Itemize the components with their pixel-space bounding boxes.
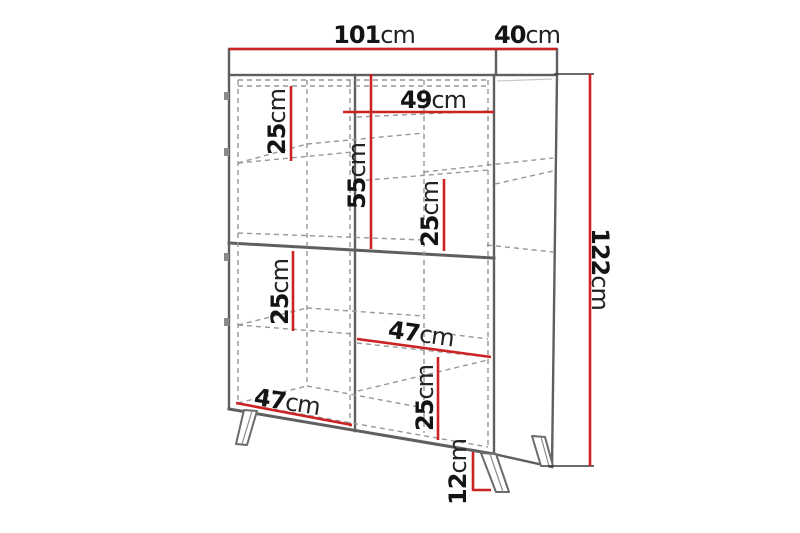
side-panel-inner-line [497, 79, 552, 81]
hinge-mark [224, 253, 229, 261]
dim-label-upper-right-shelf: 25cm [416, 181, 444, 247]
cabinet-legs [236, 410, 553, 492]
dim-label-upper-section-height: 55cm [343, 143, 371, 209]
dim-label-lower-right-shelf: 25cm [411, 365, 439, 431]
cabinet-top-panel [229, 49, 557, 75]
hinge-mark [224, 148, 229, 156]
dim-label-upper-right-width: 49cm [400, 86, 466, 114]
dim-label-lower-left-shelf: 25cm [266, 259, 294, 325]
furniture-dimension-diagram: 101cm 40cm 122cm 25cm 49cm 55cm 25cm 25c… [0, 0, 800, 533]
dim-label-total-height: 122cm [586, 228, 614, 310]
dim-label-upper-left-shelf: 25cm [263, 89, 291, 155]
lower-left-shelf-line [238, 325, 353, 334]
dim-label-leg-height: 12cm [444, 439, 472, 505]
upper-left-shelf-line [238, 152, 353, 163]
cabinet-middle-shelf-divider [229, 243, 494, 258]
front-right-leg [481, 453, 509, 492]
cabinet-side-right-edge [552, 75, 557, 467]
upper-right-shelf-line-2 [357, 170, 488, 181]
hinge-mark [224, 318, 229, 326]
dim-label-top-depth: 40cm [494, 21, 560, 49]
hinge-mark [224, 92, 229, 100]
cabinet-diagram-svg: 101cm 40cm 122cm 25cm 49cm 55cm 25cm 25c… [0, 0, 800, 533]
dim-label-top-width: 101cm [333, 21, 415, 49]
